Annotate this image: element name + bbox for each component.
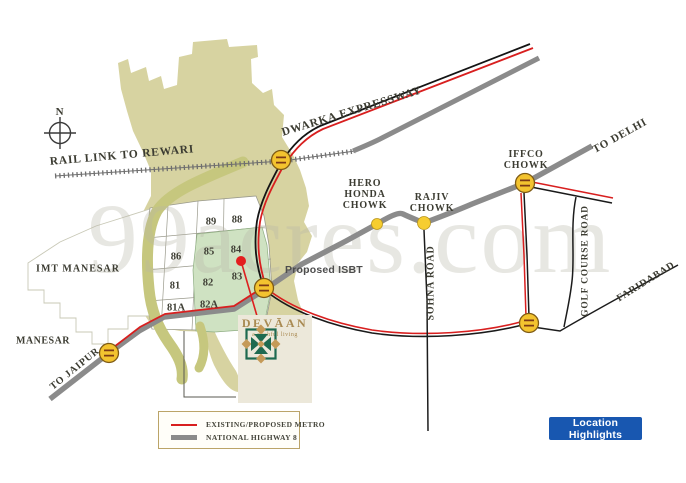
metro-line-swatch [171, 424, 197, 426]
hero-honda-chowk-dot [372, 219, 383, 230]
sector-label-81: 81 [170, 281, 181, 292]
junction-marker-golf [520, 314, 539, 333]
sector-label-82A: 82A [200, 300, 218, 311]
devaan-emblem-icon [238, 321, 284, 367]
sector-label-83: 83 [232, 272, 243, 283]
iffco-chowk-label-line2: CHOWK [504, 160, 549, 171]
landuse-khaki-south-tongue [206, 326, 240, 392]
legend-row-highway: NATIONAL HIGHWAY 8 [171, 431, 299, 444]
proposed-isbt-label: Proposed ISBT [285, 264, 363, 276]
legend-highway-label: NATIONAL HIGHWAY 8 [206, 433, 297, 442]
devaan-logo-card: DEVĀAN a wishful living [238, 315, 312, 403]
hero-honda-label-line3: CHOWK [343, 201, 388, 212]
sector-label-89: 89 [206, 217, 217, 228]
hero-honda-label-line1: HERO [343, 178, 388, 189]
junction-marker-dwarka [272, 151, 291, 170]
imt-manesar-label: IMT MANESAR [36, 263, 120, 274]
location-map: 99acres.com [0, 0, 686, 483]
manesar-label: MANESAR [16, 335, 70, 346]
legend-metro-label: EXISTING/PROPOSED METRO [206, 420, 325, 429]
iffco-chowk-label-line1: IFFCO [504, 149, 549, 160]
junction-marker-iffco [516, 174, 535, 193]
hero-honda-chowk-label: HERO HONDA CHOWK [343, 178, 388, 212]
greenbelt-ribbon-finger [199, 326, 204, 368]
rajiv-chowk-label-line1: RAJIV [410, 192, 455, 203]
north-label: N [56, 106, 65, 118]
sector-label-82: 82 [203, 278, 214, 289]
hero-honda-label-line2: HONDA [343, 189, 388, 200]
junction-marker-isbt [255, 279, 274, 298]
rajiv-chowk-label: RAJIV CHOWK [410, 192, 455, 214]
sector-label-88: 88 [232, 215, 243, 226]
project-marker-dot [236, 256, 246, 266]
legend-row-metro: EXISTING/PROPOSED METRO [171, 418, 299, 431]
sector-label-81A: 81A [167, 303, 185, 314]
sector-label-84: 84 [231, 245, 242, 256]
metro-line-dwarka-red [285, 48, 533, 164]
sohna-road-label: SOHNA ROAD [425, 246, 436, 321]
junction-marker-manesar [100, 344, 119, 363]
metro-line-dwarka-black [282, 44, 530, 161]
compass-icon [44, 117, 76, 149]
map-legend: EXISTING/PROPOSED METRO NATIONAL HIGHWAY… [158, 411, 300, 449]
golf-course-road-label: GOLF COURSE ROAD [581, 205, 592, 317]
sector-label-86: 86 [171, 252, 182, 263]
highway-line-swatch [171, 435, 197, 440]
iffco-chowk-label: IFFCO CHOWK [504, 149, 549, 171]
rajiv-chowk-dot [418, 217, 431, 230]
location-highlights-button[interactable]: Location Highlights [549, 417, 642, 440]
sector-label-85: 85 [204, 247, 215, 258]
rajiv-chowk-label-line2: CHOWK [410, 203, 455, 214]
